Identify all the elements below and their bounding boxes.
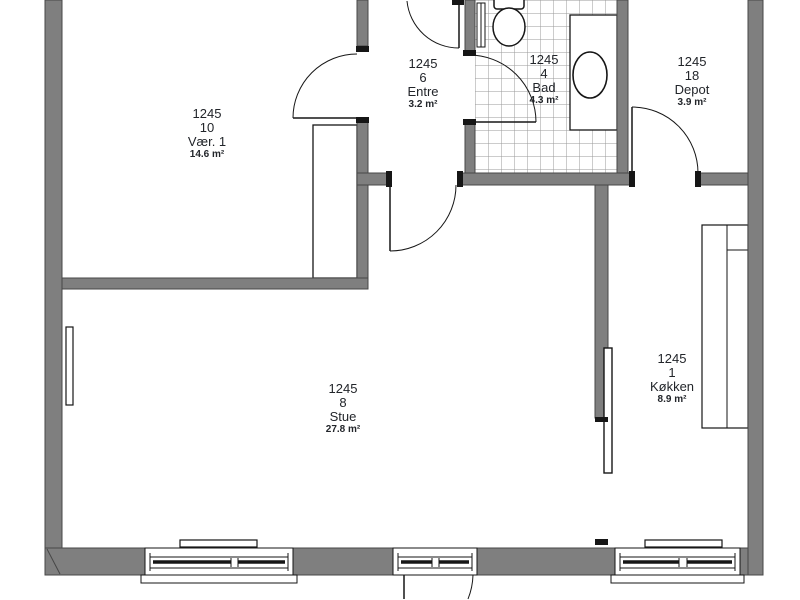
room-unit: 1245: [675, 55, 710, 69]
room-area: 8.9 m²: [650, 394, 694, 406]
window-stue: [141, 548, 297, 583]
wall-bad-depot: [617, 0, 628, 185]
room-number: 6: [407, 71, 438, 85]
room-area: 14.6 m²: [188, 149, 226, 161]
room-unit: 1245: [407, 57, 438, 71]
toilet-icon: [493, 0, 525, 46]
window-sill: [611, 575, 744, 583]
sink-counter: [570, 15, 617, 130]
room-unit: 1245: [650, 352, 694, 366]
room-label-vaer1: 1245 10 Vær. 1 14.6 m²: [188, 107, 226, 161]
room-number: 18: [675, 69, 710, 83]
room-number: 8: [326, 396, 360, 410]
shower-partition: [477, 3, 485, 47]
wall-right-outer: [748, 0, 763, 575]
window-koekken: [611, 548, 744, 583]
room-area: 4.3 m²: [530, 95, 559, 107]
room-area: 3.2 m²: [407, 99, 438, 111]
room-label-bad: 1245 4 Bad 4.3 m²: [530, 53, 559, 107]
window-sill: [141, 575, 297, 583]
wall-hall-stue-a: [357, 173, 390, 185]
floor-plan: 1245 10 Vær. 1 14.6 m² 1245 6 Entre 3.2 …: [0, 0, 800, 600]
radiator-stue-left: [66, 327, 73, 405]
room-unit: 1245: [188, 107, 226, 121]
door-entrance: [407, 1, 459, 48]
kitchen-counter: [702, 225, 748, 428]
room-name: Bad: [530, 81, 559, 95]
door-vaer1: [293, 54, 357, 118]
room-number: 1: [650, 366, 694, 380]
room-unit: 1245: [530, 53, 559, 67]
room-number: 10: [188, 121, 226, 135]
room-name: Køkken: [650, 380, 694, 394]
room-name: Entre: [407, 85, 438, 99]
room-area: 27.8 m²: [326, 424, 360, 436]
room-area: 3.9 m²: [675, 97, 710, 109]
sliding-door: [604, 348, 612, 473]
room-name: Depot: [675, 83, 710, 97]
wall-vaer1-stue: [62, 278, 368, 289]
wall-vaer1-entre-top: [357, 0, 368, 46]
radiators: [66, 327, 722, 547]
room-number: 4: [530, 67, 559, 81]
room-label-koekken: 1245 1 Køkken 8.9 m²: [650, 352, 694, 406]
wall-left-outer: [45, 0, 62, 575]
closet: [313, 125, 357, 278]
wall-vaer1-entre-bottom: [357, 122, 368, 289]
sink-icon: [573, 52, 607, 98]
wall-hall-stue-b: [460, 173, 632, 185]
wall-hall-stue-c: [698, 173, 748, 185]
door-entre-stue: [390, 185, 456, 251]
radiator-koekken-window: [645, 540, 722, 547]
room-label-entre: 1245 6 Entre 3.2 m²: [407, 57, 438, 111]
radiator-stue-window: [180, 540, 257, 547]
room-unit: 1245: [326, 382, 360, 396]
room-label-stue: 1245 8 Stue 27.8 m²: [326, 382, 360, 436]
room-name: Vær. 1: [188, 135, 226, 149]
balcony-door: [393, 548, 477, 599]
walls: [45, 0, 763, 575]
balcony-door-swing: [404, 575, 473, 599]
door-depot: [632, 107, 698, 173]
wall-entre-bad-top: [465, 0, 475, 51]
room-label-depot: 1245 18 Depot 3.9 m²: [675, 55, 710, 109]
room-name: Stue: [326, 410, 360, 424]
